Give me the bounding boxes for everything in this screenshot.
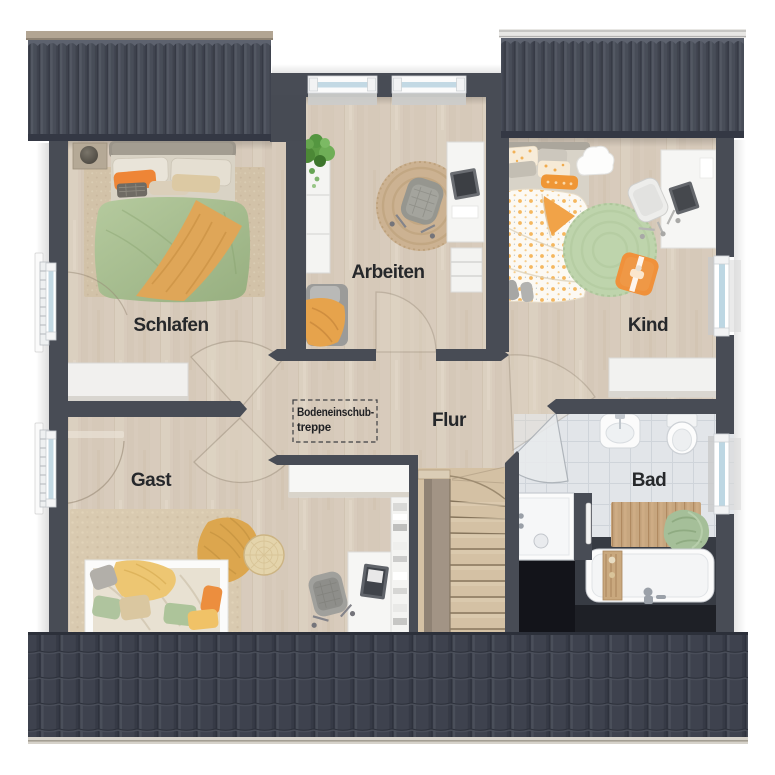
svg-text:Arbeiten: Arbeiten bbox=[351, 262, 424, 283]
svg-text:Schlafen: Schlafen bbox=[133, 315, 208, 336]
svg-text:Flur: Flur bbox=[432, 410, 467, 431]
svg-text:Bad: Bad bbox=[632, 470, 666, 491]
svg-text:Bodeneinschub-: Bodeneinschub- bbox=[297, 407, 374, 419]
svg-text:Kind: Kind bbox=[628, 315, 668, 336]
svg-text:treppe: treppe bbox=[297, 422, 331, 434]
svg-text:Gast: Gast bbox=[131, 470, 172, 491]
